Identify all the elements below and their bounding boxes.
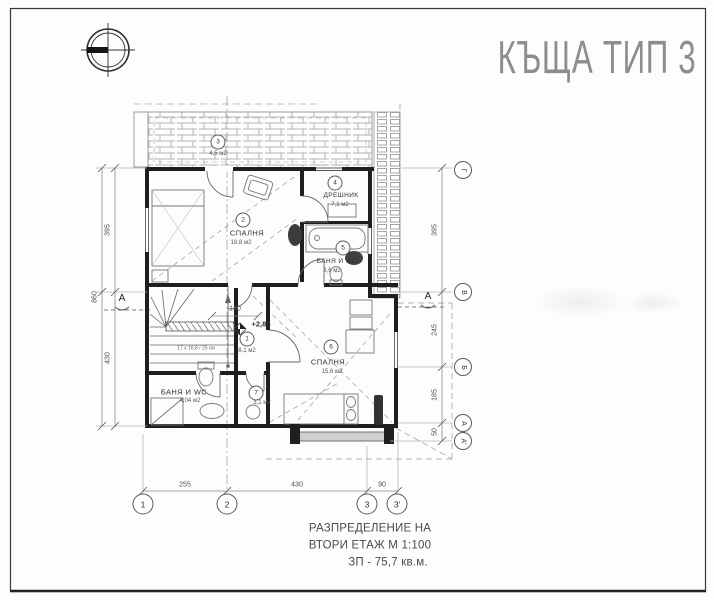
stair-width-dim: 140	[229, 306, 241, 313]
grid-axis-v-label: В	[459, 290, 466, 295]
terrace-roof-hatch	[134, 104, 400, 298]
dim-left-430: 430	[105, 352, 112, 364]
dim-right-245: 245	[432, 324, 439, 336]
section-mark-arcs	[115, 305, 435, 310]
room-area-bath: 3,6 м2	[323, 268, 340, 274]
room-area-bath-wc: 4,04 м2	[180, 398, 201, 404]
stair-note: 17 х 16,8 / 25 см	[177, 347, 215, 352]
section-mark-right: А	[425, 292, 432, 302]
dim-bottom-3: 90	[378, 482, 386, 489]
room-number-closet: 4	[328, 176, 343, 191]
architectural-drawing-sheet: КЪЩА ТИП 3 2 3 4 5 1 6 7 СПАЛНЯ 18,8 м2 …	[0, 0, 714, 600]
grid-axis-3p: 3'	[387, 494, 408, 515]
grid-axis-1: 1	[133, 494, 154, 515]
grid-axis-ap: А'	[454, 432, 472, 450]
room-label-bath: БАНЯ И WC	[317, 259, 358, 266]
dim-bottom-1: 255	[179, 482, 191, 489]
dim-bottom-2: 430	[291, 482, 303, 489]
room-label-closet: ДРЕШНИК	[324, 193, 359, 200]
room-area-room7: 3,1 м2	[253, 400, 270, 406]
dim-right-50: 50	[432, 428, 439, 436]
dim-right-185: 185	[432, 389, 439, 401]
grid-axis-3: 3	[357, 494, 378, 515]
sheet-title: КЪЩА ТИП 3	[497, 34, 696, 80]
grid-axis-b-label: Б	[460, 365, 467, 370]
dim-left-total: 860	[92, 291, 99, 303]
north-compass-icon	[81, 23, 135, 77]
caption-line-2: ВТОРИ ЕТАЖ М 1:100	[309, 540, 431, 552]
grid-axis-2: 2	[217, 494, 238, 515]
wall-openings	[144, 166, 399, 376]
staircase	[150, 289, 234, 368]
room-number-bath: 5	[336, 241, 351, 256]
room-label-bedroom2: СПАЛНЯ	[230, 229, 264, 237]
room-area-bedroom6: 15,6 м2	[322, 369, 343, 375]
grid-axis-g: Г	[454, 161, 472, 179]
room-area-terrace: 4,5 м2	[209, 151, 226, 157]
grid-axis-a: А	[454, 414, 472, 432]
scan-smudge	[530, 286, 630, 318]
room-number-bedroom2: 2	[236, 213, 251, 228]
dim-right-395: 395	[432, 224, 439, 236]
windows	[146, 168, 398, 368]
grid-axis-g-label: Г	[459, 168, 466, 172]
grid-axis-b: Б	[454, 358, 472, 376]
section-mark-left: А	[119, 294, 126, 304]
level-annotation: +2,85	[252, 320, 271, 328]
room-number-terrace: 3	[211, 135, 226, 150]
caption-line-3: ЗП - 75,7 кв.м.	[348, 557, 427, 569]
room-number-hall: 1	[240, 332, 255, 347]
room-label-bath-wc: БАНЯ И WC	[161, 388, 207, 396]
room-area-hall: 8,1 м2	[238, 348, 255, 354]
room-area-closet: 7,1 м2	[331, 202, 348, 208]
room-number-bedroom6: 6	[324, 340, 339, 355]
room-number-room7: 7	[249, 386, 264, 401]
room-area-bedroom2: 18,8 м2	[231, 240, 252, 246]
scan-smudge	[625, 292, 685, 314]
grid-axis-a-label: А	[459, 421, 466, 426]
grid-axis-v: В	[454, 283, 472, 301]
room-label-bedroom6: СПАЛНЯ	[311, 358, 345, 366]
dim-left-395: 395	[105, 224, 112, 236]
caption-line-1: РАЗПРЕДЕЛЕНИЕ НА	[309, 523, 431, 535]
grid-axis-ap-label: А'	[459, 438, 466, 444]
